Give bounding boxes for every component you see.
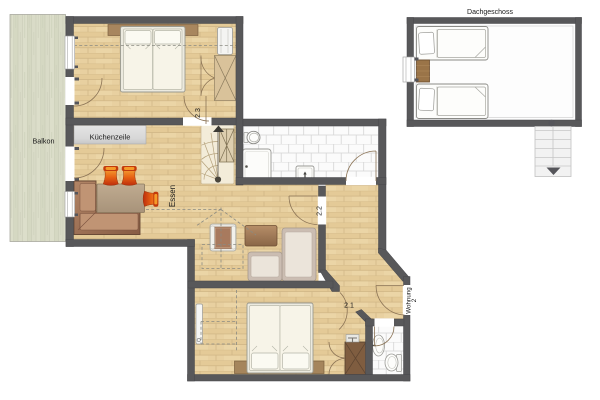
svg-text:2: 2 — [411, 298, 418, 302]
svg-text:Dachgeschoss: Dachgeschoss — [467, 9, 513, 16]
svg-text:Balkon: Balkon — [33, 137, 55, 146]
svg-text:Küchenzeile: Küchenzeile — [90, 133, 131, 142]
svg-text:2.2: 2.2 — [317, 206, 324, 216]
svg-text:2.1: 2.1 — [344, 303, 354, 310]
svg-text:Essen: Essen — [168, 185, 177, 207]
svg-text:2.3: 2.3 — [195, 108, 202, 118]
